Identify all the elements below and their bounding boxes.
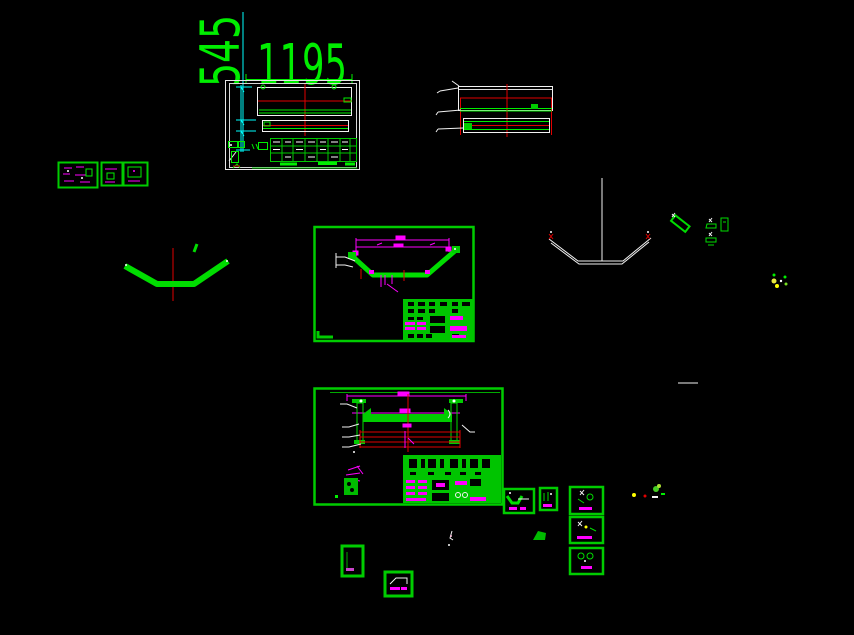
- linework-primitive: [350, 488, 354, 492]
- view-top-right: [436, 81, 553, 137]
- linework-primitive: [657, 484, 661, 488]
- part-cluster-roller: [671, 213, 689, 232]
- linework-primitive: [775, 284, 779, 288]
- tick-mark: [194, 244, 197, 252]
- linework-primitive: [450, 535, 452, 537]
- linework-primitive: [418, 302, 425, 306]
- linework-primitive: [418, 492, 427, 495]
- green-label-mark: [464, 123, 472, 129]
- leader-line: [229, 152, 236, 161]
- linework-primitive: [252, 144, 254, 149]
- linework-primitive: [454, 248, 456, 250]
- linework-primitive: [405, 327, 415, 330]
- linework-primitive: [440, 459, 444, 468]
- linework-primitive: [408, 309, 414, 313]
- linework-primitive: [647, 231, 649, 233]
- linework-primitive: [550, 231, 552, 233]
- linework-primitive: [580, 490, 584, 495]
- linework-primitive: [470, 459, 478, 468]
- thumb-box: [385, 572, 412, 596]
- linework-primitive: [448, 544, 450, 546]
- linework-primitive: [429, 309, 435, 313]
- linework-primitive: [509, 492, 511, 494]
- linework-primitive: [125, 264, 127, 266]
- linework-primitive: [578, 521, 582, 526]
- linework-primitive: [398, 392, 409, 395]
- linework-primitive: [450, 326, 467, 331]
- linework-primitive: [652, 496, 658, 498]
- linework-primitive: [347, 482, 351, 486]
- linework-primitive: [403, 424, 411, 427]
- linework-primitive: [449, 399, 463, 403]
- part-cluster-tiny-center: [632, 484, 665, 498]
- linework-primitive: [408, 302, 414, 306]
- linework-primitive: [452, 81, 459, 86]
- linework-primitive: [428, 459, 436, 468]
- linework-primitive: [577, 536, 592, 539]
- roller-icon: [671, 215, 689, 232]
- linework-primitive: [128, 167, 141, 177]
- linework-primitive: [587, 494, 593, 500]
- dim-label-1195: 1195: [257, 33, 347, 98]
- linework-primitive: [585, 526, 588, 529]
- linework-primitive: [452, 302, 458, 306]
- linework-primitive: [579, 507, 592, 510]
- linework-primitive: [86, 169, 92, 176]
- thumb-box: [342, 546, 363, 576]
- linework-primitive: [335, 495, 338, 498]
- part-thumbnails-bottom-center: [342, 546, 412, 596]
- linework-primitive: [436, 128, 463, 132]
- linework-primitive: [406, 486, 415, 489]
- green-label-mark: [531, 104, 538, 109]
- sheet-center: [315, 227, 475, 341]
- dim-label-545: 545: [189, 15, 252, 87]
- linework-primitive: [446, 247, 451, 251]
- linework-primitive: [426, 334, 432, 338]
- linework-primitive: [578, 499, 584, 503]
- linework-primitive: [81, 177, 83, 179]
- linework-primitive: [644, 495, 647, 498]
- linework-primitive: [336, 265, 353, 267]
- linework-primitive: [785, 283, 788, 286]
- linework-primitive: [428, 472, 434, 475]
- tiny-white-glyph: [448, 531, 453, 546]
- linework-primitive: [721, 218, 728, 231]
- linework-primitive: [346, 568, 354, 571]
- linework-primitive: [344, 478, 358, 495]
- linework-primitive: [432, 493, 449, 501]
- linework-primitive: [67, 170, 69, 172]
- linework-primitive: [462, 425, 475, 432]
- linework-primitive: [230, 144, 232, 146]
- linework-primitive: [406, 492, 415, 495]
- linework-primitive: [475, 472, 481, 475]
- linework-primitive: [772, 279, 777, 284]
- linework-primitive: [417, 327, 426, 330]
- section-lines-red: [360, 430, 460, 448]
- linework-primitive: [394, 244, 403, 247]
- linework-primitive: [470, 479, 481, 486]
- linework-primitive: [353, 451, 355, 453]
- notes-text-row: [280, 164, 355, 165]
- linework-primitive: [452, 335, 466, 338]
- linework-primitive: [377, 243, 435, 245]
- linework-primitive: [706, 224, 716, 228]
- detail-bottom-left: [335, 466, 363, 498]
- title-block-text-marks: [273, 142, 348, 157]
- part-cluster-tiny-right: [772, 274, 788, 289]
- corner-mark: [318, 331, 333, 337]
- linework-primitive: [421, 459, 425, 468]
- linework-primitive: [784, 276, 787, 279]
- linework-primitive: [661, 493, 665, 495]
- linework-primitive: [408, 317, 414, 320]
- end-flange: [452, 246, 460, 253]
- linework-primitive: [436, 483, 445, 487]
- linework-primitive: [430, 326, 445, 333]
- linework-primitive: [417, 322, 426, 325]
- linework-primitive: [259, 143, 268, 150]
- linework-primitive: [590, 528, 596, 531]
- linework-primitive: [417, 334, 423, 338]
- linework-primitive: [387, 284, 398, 292]
- linework-primitive: [107, 173, 114, 179]
- thumb-box: [570, 517, 603, 543]
- dimension-lines: [353, 236, 451, 258]
- linework-primitive: [342, 424, 359, 427]
- linework-primitive: [352, 399, 366, 403]
- linework-primitive: [543, 504, 552, 507]
- linework-primitive: [418, 486, 427, 489]
- linework-primitive: [549, 234, 553, 239]
- linework-primitive: [452, 309, 458, 313]
- linework-primitive: [780, 280, 782, 282]
- linework-primitive: [410, 472, 416, 475]
- linework-primitive: [646, 234, 650, 239]
- linework-primitive: [408, 334, 414, 338]
- linework-primitive: [550, 493, 552, 495]
- trough-outer: [549, 238, 651, 261]
- linework-primitive: [450, 459, 458, 468]
- linework-primitive: [429, 302, 435, 306]
- linework-primitive: [418, 480, 427, 483]
- part-cluster-brackets: [706, 218, 728, 245]
- linework-primitive: [369, 270, 374, 274]
- linework-primitive: [425, 270, 430, 274]
- linework-primitive: [390, 578, 407, 584]
- linework-primitive: [133, 170, 135, 172]
- linework-primitive: [584, 560, 586, 562]
- linework-primitive: [709, 218, 712, 222]
- wedge-part: [533, 531, 546, 540]
- linework-primitive: [401, 587, 407, 590]
- linework-primitive: [405, 322, 415, 325]
- thumb-box: [124, 163, 148, 186]
- linework-primitive: [406, 498, 426, 501]
- title-block: [403, 455, 501, 503]
- linework-primitive: [440, 302, 447, 306]
- linework-primitive: [390, 587, 400, 590]
- linework-primitive: [706, 238, 716, 242]
- trough-outline-white: [549, 178, 651, 264]
- linework-primitive: [581, 566, 592, 569]
- cad-canvas[interactable]: 545 1195: [0, 0, 854, 635]
- linework-primitive: [430, 316, 445, 323]
- trough-profile-green: [125, 244, 228, 301]
- linework-primitive: [445, 472, 451, 475]
- sheet-bottom: [315, 389, 503, 505]
- thumb-box: [570, 548, 603, 574]
- linework-primitive: [509, 507, 517, 510]
- linework-primitive: [450, 316, 463, 320]
- linework-primitive: [773, 274, 776, 277]
- linework-primitive: [709, 232, 712, 236]
- linework-primitive: [409, 459, 417, 468]
- linework-primitive: [340, 404, 357, 408]
- linework-primitive: [360, 400, 363, 403]
- linework-primitive: [226, 260, 228, 262]
- title-block: [403, 299, 474, 341]
- cad-linework-layer: 545 1195: [0, 0, 854, 635]
- part-thumbnails-bottom-right: [504, 487, 603, 574]
- bolt-marks: [381, 275, 398, 292]
- linework-primitive: [632, 493, 636, 497]
- linework-primitive: [578, 553, 584, 559]
- linework-primitive: [417, 317, 423, 320]
- linework-primitive: [406, 480, 415, 483]
- linework-primitive: [418, 309, 425, 313]
- linework-primitive: [470, 497, 486, 501]
- linework-primitive: [587, 553, 593, 559]
- linework-primitive: [256, 144, 258, 149]
- end-fittings-red: [549, 234, 650, 239]
- part-thumbnails-left: [59, 163, 148, 188]
- linework-primitive: [462, 302, 470, 306]
- linework-primitive: [396, 236, 405, 239]
- linework-primitive: [482, 459, 490, 468]
- end-flange: [348, 252, 356, 259]
- linework-primitive: [342, 444, 361, 447]
- linework-primitive: [363, 408, 371, 414]
- linework-primitive: [520, 507, 526, 510]
- linework-primitive: [455, 481, 467, 485]
- linework-primitive: [436, 110, 461, 115]
- linework-primitive: [460, 472, 466, 475]
- linework-primitive: [462, 459, 466, 468]
- trough-belt-line: [125, 261, 228, 284]
- linework-primitive: [437, 88, 458, 93]
- linework-primitive: [453, 400, 456, 403]
- linework-primitive: [408, 438, 414, 444]
